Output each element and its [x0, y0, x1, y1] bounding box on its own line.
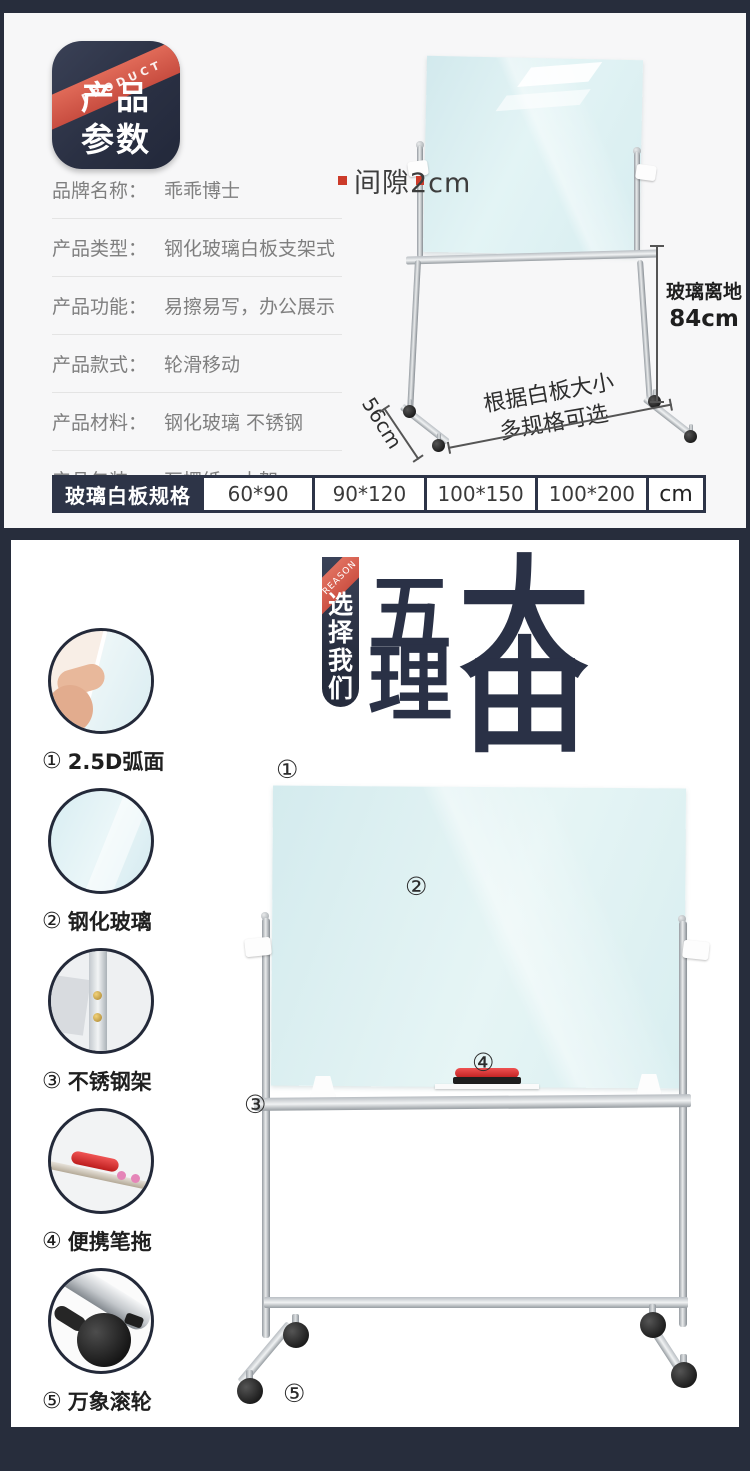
spec-table: 玻璃白板规格 60*90 90*120 100*150 100*200 cm — [52, 475, 706, 513]
feature-curved-surface: ① 2.5D弧面 — [42, 628, 202, 776]
feature-text: 2.5D弧面 — [68, 746, 165, 776]
caster-wheel — [671, 1362, 697, 1388]
product-params-section: PRODUCT 产品 参数 品牌名称： 乖乖博士 产品类型： 钢化玻璃白板支架式… — [4, 13, 746, 528]
param-label: 产品款式： — [52, 350, 164, 377]
caster-wheel — [237, 1378, 263, 1404]
photo-marker-5: ⑤ — [283, 1379, 305, 1408]
stand-crossbar-upper — [254, 1094, 691, 1111]
param-label: 产品功能： — [52, 292, 164, 319]
spec-size-cell: 100*200 — [538, 478, 646, 510]
badge-title: 产品 参数 — [52, 77, 180, 161]
feature-pen-tray: ④ 便携笔拖 — [42, 1108, 202, 1256]
param-label: 产品材料： — [52, 408, 164, 435]
feature-number: ④ — [42, 1229, 62, 1254]
feature-number: ① — [42, 749, 62, 774]
feature-text: 钢化玻璃 — [68, 906, 152, 936]
ribbon-char: 们 — [322, 675, 359, 703]
feature-number: ⑤ — [42, 1389, 62, 1414]
title-char: 由 — [463, 636, 587, 760]
spec-size-cell: 100*150 — [427, 478, 535, 510]
photo-marker-4: ④ — [472, 1048, 494, 1077]
clearance-dimension-line — [656, 245, 658, 403]
gap-annotation: 间隙2cm — [338, 161, 471, 200]
clearance-value: 84cm — [660, 305, 748, 334]
pen-tray — [435, 1084, 539, 1089]
photo-marker-3: ③ — [244, 1090, 266, 1119]
param-row-brand: 品牌名称： 乖乖博士 — [52, 161, 342, 219]
title-char: 理 — [368, 642, 452, 726]
caster-wheel — [403, 405, 416, 418]
feature-label: ① 2.5D弧面 — [42, 746, 202, 776]
frame-panel-art — [48, 974, 91, 1035]
spec-unit-cell: cm — [649, 478, 703, 510]
glass-sheen — [271, 786, 686, 1089]
feature-label: ② 钢化玻璃 — [42, 906, 202, 936]
param-row-style: 产品款式： 轮滑移动 — [52, 335, 342, 393]
magnet-art — [131, 1174, 140, 1183]
badge-title-line2: 参数 — [52, 119, 180, 161]
caster-wheel — [432, 439, 445, 452]
param-value: 乖乖博士 — [164, 176, 240, 203]
caster-wheel — [283, 1322, 309, 1348]
magnet-art — [117, 1171, 126, 1180]
gap-annotation-text: 间隙2cm — [354, 161, 471, 200]
stand-crossbar-lower — [264, 1297, 688, 1308]
feature-photo-curved-surface — [48, 628, 154, 734]
choose-us-vertical-text: 选 择 我 们 — [322, 591, 359, 703]
depth-annotation: 56cm — [357, 393, 407, 453]
board-clip — [682, 940, 710, 961]
screw-art — [93, 991, 102, 1000]
caster-wheel — [640, 1312, 666, 1338]
feature-photo-pen-tray — [48, 1108, 154, 1214]
stand-pole-right — [679, 921, 687, 1327]
feature-label: ⑤ 万象滚轮 — [42, 1386, 202, 1416]
photo-marker-1: ① — [276, 755, 298, 784]
feature-label: ④ 便携笔拖 — [42, 1226, 202, 1256]
ribbon-char: 选 — [322, 591, 359, 619]
glass-streak-art — [78, 788, 154, 894]
param-row-type: 产品类型： 钢化玻璃白板支架式 — [52, 219, 342, 277]
param-value: 钢化玻璃白板支架式 — [164, 234, 335, 261]
stand-pole-left — [262, 918, 270, 1338]
clearance-annotation: 玻璃离地 84cm — [660, 281, 748, 334]
param-value: 轮滑移动 — [164, 350, 240, 377]
param-label: 产品类型： — [52, 234, 164, 261]
feature-tempered-glass: ② 钢化玻璃 — [42, 788, 202, 936]
ribbon-char: 择 — [322, 619, 359, 647]
feature-label: ③ 不锈钢架 — [42, 1066, 202, 1096]
ribbon-char: 我 — [322, 647, 359, 675]
feature-text: 便携笔拖 — [68, 1226, 152, 1256]
feature-photo-tempered-glass — [48, 788, 154, 894]
param-label: 品牌名称： — [52, 176, 164, 203]
five-reasons-section: REASON 选 择 我 们 五 大 理 由 ① 2.5D弧面 ② — [11, 540, 739, 1427]
spec-size-cell: 90*120 — [315, 478, 423, 510]
clearance-text: 玻璃离地 — [660, 281, 748, 305]
eraser-base — [453, 1077, 521, 1084]
caster-wheel — [684, 430, 697, 443]
stand-leg-left — [407, 260, 421, 410]
red-square-bullet-icon — [338, 176, 347, 185]
param-row-material: 产品材料： 钢化玻璃 不锈钢 — [52, 393, 342, 451]
frame-bar-art — [89, 948, 107, 1054]
spec-size-cell: 60*90 — [204, 478, 312, 510]
screw-art — [93, 1013, 102, 1022]
feature-number: ③ — [42, 1069, 62, 1094]
hand-art — [48, 685, 93, 733]
param-list: 品牌名称： 乖乖博士 产品类型： 钢化玻璃白板支架式 产品功能： 易擦易写，办公… — [52, 161, 342, 509]
feature-text: 万象滚轮 — [68, 1386, 152, 1416]
whiteboard-glass-photo-main — [271, 786, 686, 1089]
spec-table-header: 玻璃白板规格 — [55, 478, 201, 510]
product-detail-page: { "colors": { "navy_background": "#272d3… — [0, 0, 750, 1471]
param-row-function: 产品功能： 易擦易写，办公展示 — [52, 277, 342, 335]
feature-number: ② — [42, 909, 62, 934]
board-clip — [635, 164, 657, 182]
feature-photo-caster-wheels — [48, 1268, 154, 1374]
feature-stainless-frame: ③ 不锈钢架 — [42, 948, 202, 1096]
wheel-art — [77, 1313, 131, 1367]
feature-caster-wheels: ⑤ 万象滚轮 — [42, 1268, 202, 1416]
param-value: 易擦易写，办公展示 — [164, 292, 335, 319]
feature-text: 不锈钢架 — [68, 1066, 152, 1096]
badge-title-line1: 产品 — [52, 77, 180, 119]
photo-marker-2: ② — [405, 872, 427, 901]
feature-photo-stainless-frame — [48, 948, 154, 1054]
param-value: 钢化玻璃 不锈钢 — [164, 408, 303, 435]
board-clip — [244, 937, 272, 958]
product-params-badge: PRODUCT 产品 参数 — [52, 41, 180, 169]
whiteboard-glass-photo-top — [423, 56, 643, 256]
choose-us-ribbon: REASON 选 择 我 们 — [322, 557, 359, 707]
